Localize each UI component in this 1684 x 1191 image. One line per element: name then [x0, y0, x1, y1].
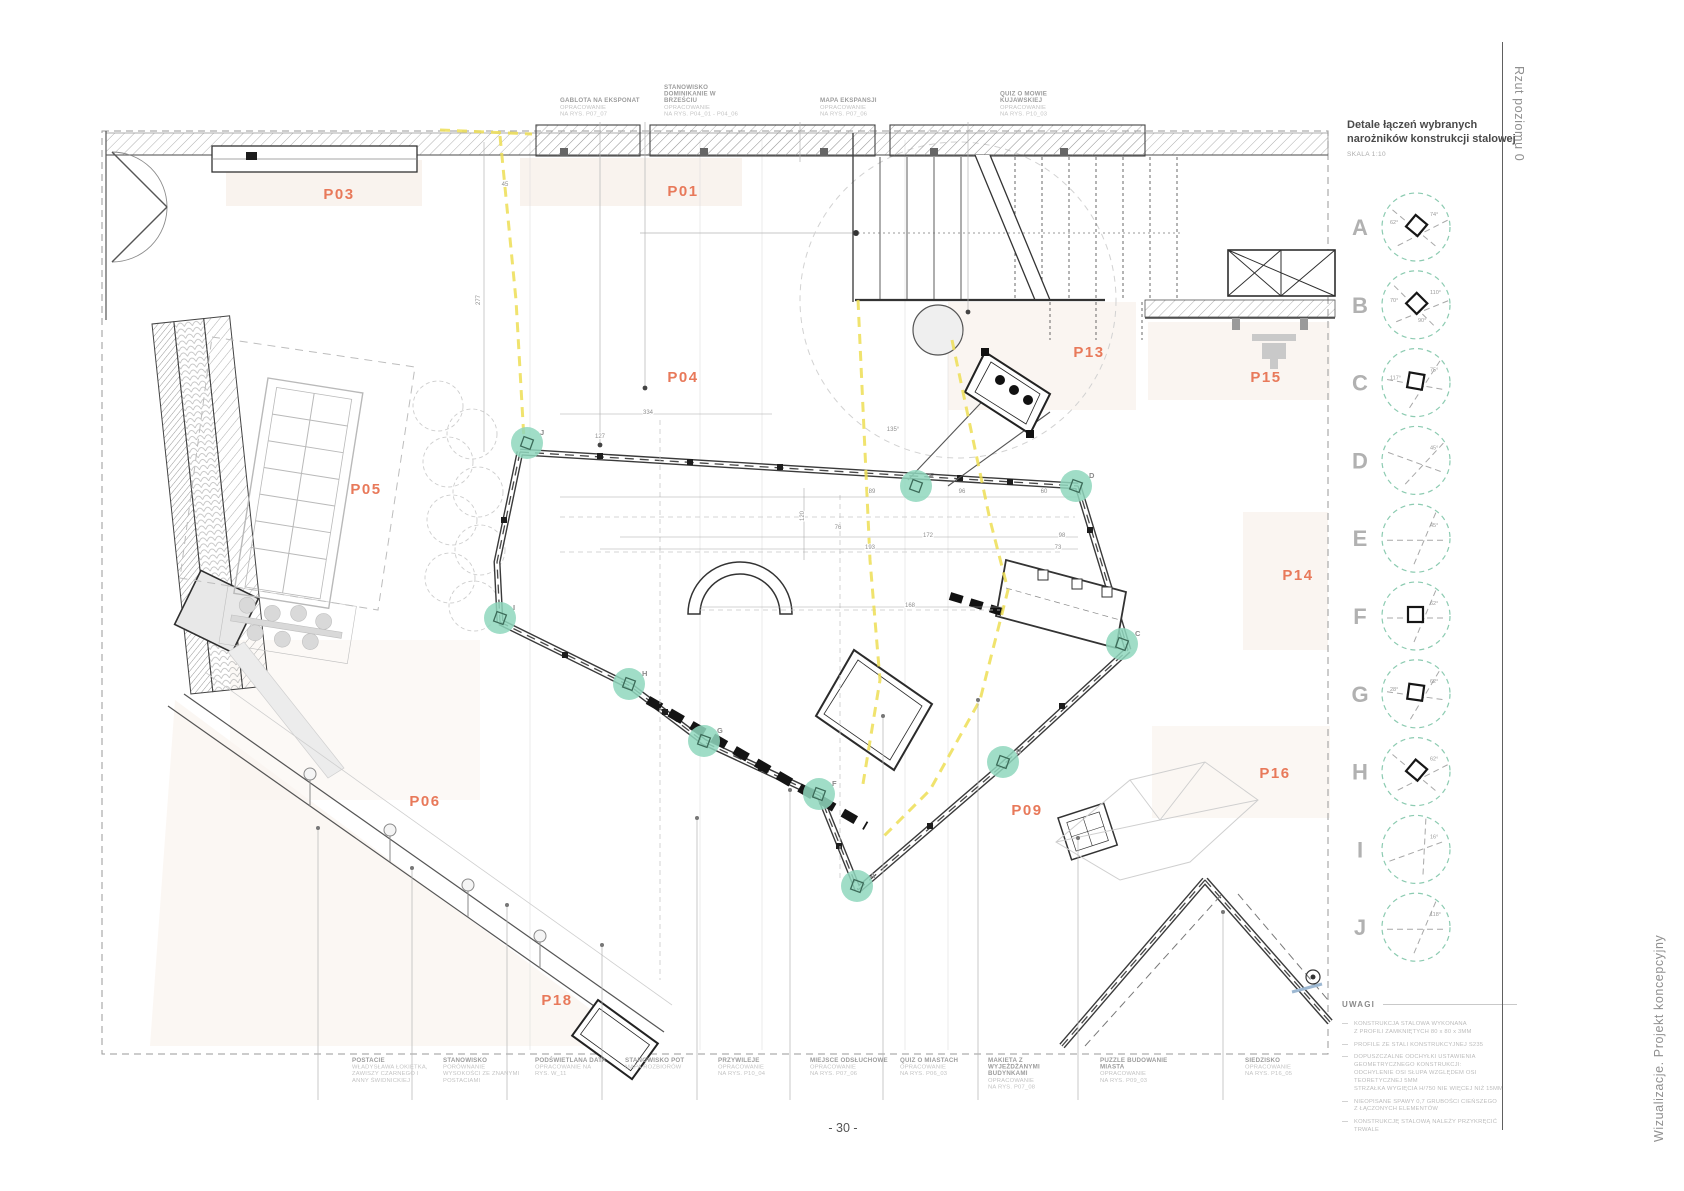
- note-lines: NIEOPISANE SPAWY 0,7 GRUBOŚCI CIEŃSZEGOZ…: [1354, 1099, 1497, 1115]
- annotation-line: OPRACOWANIE: [664, 105, 710, 111]
- annotation-line: NA RYS. P07_07: [560, 111, 607, 117]
- central-structure-walls: [497, 452, 1128, 890]
- leader-dot: [600, 943, 604, 947]
- detail-angle-label: 62°: [1390, 220, 1398, 226]
- annotation-bottom-6: MIEJSCE ODSŁUCHOWEOPRACOWANIENA RYS. P07…: [810, 1057, 888, 1077]
- detail-callouts: A74°62°B110°70°90°C75°117°D45°E45°F62°G6…: [1351, 188, 1454, 961]
- notes-list: —KONSTRUKCJA STALOWA WYKONANAZ PROFILI Z…: [1342, 1021, 1517, 1135]
- detail-wall-line: [1405, 435, 1443, 491]
- annotation-line: OPRACOWANIE: [900, 1065, 946, 1071]
- marker-circle: [1060, 470, 1092, 502]
- zone-label-P16: P16: [1259, 765, 1290, 782]
- detail-E: E45°: [1353, 504, 1450, 572]
- detail-sketch: [1380, 426, 1452, 495]
- right-wing: [950, 560, 1126, 648]
- detail-F: F62°: [1353, 582, 1450, 650]
- notes-rule: [1383, 1004, 1517, 1005]
- annotation-bottom-10: SIEDZISKOOPRACOWANIENA RYS. P16_05: [1245, 1057, 1292, 1077]
- detail-circle: [1382, 426, 1450, 494]
- annotation-line: GABLOTA NA EKSPONAT: [560, 97, 640, 104]
- annotation-line: BUDYNKAMI: [988, 1070, 1028, 1077]
- detail-sketch: [1383, 352, 1449, 413]
- dimension-label: 120: [800, 510, 806, 521]
- annotation-line: RYS. W_11: [535, 1071, 567, 1077]
- annotation-line: BRZEŚCIU: [664, 97, 698, 104]
- zone-label-P15: P15: [1250, 369, 1281, 386]
- note-line: DOPUSZCZALNE ODCHYŁKI USTAWIENIA: [1354, 1054, 1503, 1062]
- detail-wall-line: [1414, 901, 1436, 953]
- annotation-line: MIEJSCE ODSŁUCHOWE: [810, 1057, 888, 1064]
- note-lines: DOPUSZCZALNE ODCHYŁKI USTAWIENIAGEOMETRY…: [1354, 1054, 1503, 1093]
- note-item-3: —DOPUSZCZALNE ODCHYŁKI USTAWIENIAGEOMETR…: [1342, 1054, 1517, 1093]
- detail-wall-line: [1405, 818, 1443, 874]
- note-bullet: —: [1342, 1099, 1348, 1115]
- note-line: PROFILE ZE STALI KONSTRUKCYJNEJ S235: [1354, 1042, 1483, 1050]
- marker-letter: G: [717, 726, 723, 735]
- annotation-line: PODŚWIETLANA DATA: [535, 1057, 607, 1064]
- zone-tints: [150, 158, 1330, 1046]
- detail-angle-label: 74°: [1430, 212, 1438, 218]
- detail-letter: C: [1352, 371, 1368, 396]
- sheet-side-title: Rzut poziomu 0: [1512, 66, 1526, 161]
- annotations-bottom: POSTACIEWŁADYSŁAWA ŁOKIETKA,ZAWISZY CZAR…: [352, 1057, 1292, 1090]
- annotation-line: NA RYS. P10_03: [1000, 111, 1047, 117]
- steel-profile-square: [1407, 684, 1424, 701]
- marker-letter: J: [540, 428, 544, 437]
- marker-C: C: [1106, 628, 1141, 660]
- detail-B: B110°70°90°: [1352, 266, 1455, 344]
- annotation-line: POSTACIAMI: [443, 1078, 481, 1084]
- leader-dot: [1221, 910, 1225, 914]
- detail-angle-label: 117°: [1390, 376, 1401, 382]
- steel-profile-square: [1408, 607, 1423, 622]
- leader-dot: [976, 698, 980, 702]
- dimension-label: 45: [502, 182, 509, 188]
- annotation-line: NA RYS. P09_03: [1100, 1078, 1147, 1084]
- annotation-line: OPRACOWANIE NA: [535, 1065, 591, 1071]
- marker-letter: B: [1016, 747, 1022, 756]
- marker-A: A: [841, 870, 876, 902]
- marker-circle: [803, 778, 835, 810]
- annotation-top-3: MAPA EKSPANSJIOPRACOWANIENA RYS. P07_06: [820, 97, 877, 117]
- note-line: STRZAŁKA WYGIĘCIA H/750 NIE WIĘCEJ NIŻ 1…: [1354, 1086, 1503, 1094]
- annotation-line: PRZYWILEJE: [718, 1057, 760, 1064]
- leader-dot: [695, 816, 699, 820]
- note-lines: KONSTRUKCJĘ STALOWĄ NALEŻY PRZYKRĘCIĆ TR…: [1354, 1119, 1517, 1135]
- annotation-line: OPRACOWANIE: [1000, 105, 1046, 111]
- annotation-line: OPRACOWANIE: [810, 1065, 856, 1071]
- detail-letter: B: [1352, 293, 1368, 318]
- marker-letter: A: [870, 871, 876, 880]
- section-lines: [530, 140, 948, 1050]
- leader-dot: [598, 443, 603, 448]
- detail-circle: [1382, 504, 1450, 572]
- detail-angle-label: 118°: [1430, 912, 1441, 918]
- detail-letter: A: [1352, 215, 1368, 240]
- detail-I: I16°: [1357, 815, 1452, 884]
- annotation-line: NA RYS. P16_05: [1245, 1071, 1292, 1077]
- note-item-5: —KONSTRUKCJĘ STALOWĄ NALEŻY PRZYKRĘCIĆ T…: [1342, 1119, 1517, 1135]
- annotation-top-1: GABLOTA NA EKSPONATOPRACOWANIENA RYS. P0…: [560, 97, 640, 117]
- detail-A: A74°62°: [1352, 188, 1455, 265]
- marker-letter: C: [1135, 629, 1141, 638]
- detail-letter: D: [1352, 448, 1368, 473]
- annotation-bottom-7: QUIZ O MIASTACHOPRACOWANIENA RYS. P06_03: [900, 1057, 959, 1077]
- steel-profile-square: [1406, 760, 1427, 781]
- interior-guides: [560, 420, 1075, 980]
- marker-letter: D: [1089, 471, 1095, 480]
- detail-sketch: [1387, 590, 1445, 642]
- detail-G: G62°28°: [1351, 660, 1450, 728]
- detail-title-line1: Detale łączeń wybranych: [1347, 119, 1516, 133]
- detail-scale: SKALA 1:10: [1347, 151, 1516, 158]
- page-number: - 30 -: [793, 1121, 893, 1135]
- detail-panel-title: Detale łączeń wybranych narożników konst…: [1347, 119, 1516, 158]
- detail-angle-label: 45°: [1430, 523, 1438, 529]
- dimension-label: 60: [1041, 489, 1048, 495]
- detail-wall-line: [1389, 841, 1444, 861]
- detail-wall-line: [1414, 512, 1436, 564]
- annotations-top: GABLOTA NA EKSPONATOPRACOWANIENA RYS. P0…: [560, 84, 1047, 117]
- marker-circle: [987, 746, 1019, 778]
- dimension-label: 89: [869, 489, 876, 495]
- annotation-line: OPRACOWANIE: [820, 105, 866, 111]
- marker-D: D: [1060, 470, 1095, 502]
- detail-sketch: [1380, 815, 1452, 884]
- detail-title-line2: narożników konstrukcji stalowej: [1347, 133, 1516, 147]
- annotation-line: PORÓWNANIE: [443, 1064, 485, 1071]
- marker-circle: [1106, 628, 1138, 660]
- note-bullet: —: [1342, 1021, 1348, 1037]
- annotation-bottom-5: PRZYWILEJEOPRACOWANIENA RYS. P10_04: [718, 1057, 766, 1077]
- note-line: TEORETYCZNEJ 5MM: [1354, 1078, 1503, 1086]
- annotation-line: POSTACIE: [352, 1057, 385, 1064]
- dimension-label: 334: [643, 410, 654, 416]
- annotation-line: NA RYS. P04_01 - P04_06: [664, 111, 738, 117]
- detail-angle-label: 45°: [1430, 445, 1438, 451]
- note-line: ODCHYLENIE OSI SŁUPA WZGLĘDEM OSI: [1354, 1070, 1503, 1078]
- annotation-line: STANOWISKO: [443, 1057, 487, 1064]
- leader-dot: [788, 788, 792, 792]
- annotation-line: ZAWISZY CZARNEGO I: [352, 1071, 419, 1077]
- annotation-line: OPRACOWANIE: [718, 1065, 764, 1071]
- detail-sketch: [1387, 512, 1445, 564]
- annotation-line: STANOWISKO POT: [625, 1057, 684, 1064]
- dimension-label: 172: [923, 533, 934, 539]
- annotation-line: NA RYS. P06_03: [900, 1071, 947, 1077]
- marker-circle: [484, 602, 516, 634]
- drawing-sheet: 334127899660761721939873168135°45120277 …: [0, 0, 1684, 1191]
- note-item-2: —PROFILE ZE STALI KONSTRUKCYJNEJ S235: [1342, 1042, 1517, 1050]
- detail-angle-label: 16°: [1430, 834, 1438, 840]
- annotation-line: WŁADYSŁAWA ŁOKIETKA,: [352, 1065, 428, 1071]
- dimension-label: 98: [1059, 533, 1066, 539]
- zone-label-P05: P05: [350, 481, 381, 498]
- detail-angle-label: 62°: [1430, 679, 1438, 685]
- dimension-label: 277: [476, 294, 482, 305]
- zone-label-P18: P18: [541, 992, 572, 1009]
- note-item-1: —KONSTRUKCJA STALOWA WYKONANAZ PROFILI Z…: [1342, 1021, 1517, 1037]
- annotation-line: ANNY ŚWIDNICKIEJ: [352, 1076, 410, 1084]
- detail-sketch: [1387, 901, 1445, 953]
- leader-dot: [316, 826, 320, 830]
- detail-circle: [1382, 893, 1450, 961]
- annotation-line: NA RYS. P07_06: [820, 111, 867, 117]
- steel-profile-square: [1407, 372, 1424, 389]
- annotation-line: OPRACOWANIE: [560, 105, 606, 111]
- detail-letter: J: [1354, 915, 1366, 940]
- interior-furniture: [648, 562, 932, 826]
- annotation-bottom-3: PODŚWIETLANA DATAOPRACOWANIE NARYS. W_11: [535, 1057, 607, 1077]
- kiosk-p09: [1058, 803, 1117, 860]
- dimension-label: 127: [595, 434, 606, 440]
- detail-angle-label: 75°: [1430, 368, 1438, 374]
- zone-label-P06: P06: [409, 793, 440, 810]
- annotation-bottom-1: POSTACIEWŁADYSŁAWA ŁOKIETKA,ZAWISZY CZAR…: [352, 1057, 428, 1084]
- annotation-bottom-8: MAKIETA ZWYJEŻDŻANYMIBUDYNKAMIOPRACOWANI…: [988, 1057, 1040, 1090]
- note-bullet: —: [1342, 1119, 1348, 1135]
- display-cases-top: [536, 125, 1145, 156]
- leader-dot: [643, 386, 648, 391]
- annotation-line: QUIZ O MIASTACH: [900, 1057, 959, 1064]
- detail-D: D45°: [1352, 426, 1452, 495]
- detail-wall-line: [1398, 750, 1448, 804]
- notes-block: UWAGI —KONSTRUKCJA STALOWA WYKONANAZ PRO…: [1342, 1000, 1517, 1140]
- dimension-label: 193: [865, 545, 876, 551]
- sheet-side-subtitle: Wizualizacje. Projekt koncepcyjny: [1652, 935, 1666, 1142]
- steel-profile-square: [1406, 215, 1427, 236]
- notes-heading: UWAGI: [1342, 1000, 1375, 1009]
- annotation-line: NA RYS. P07_06: [810, 1071, 857, 1077]
- marker-circle: [900, 470, 932, 502]
- dimension-label: 76: [835, 525, 842, 531]
- detail-sketch: [1377, 266, 1455, 344]
- leader-dot: [410, 866, 414, 870]
- detail-H: H62°: [1352, 733, 1455, 810]
- annotation-line: MIASTA: [1100, 1064, 1125, 1071]
- marker-circle: [841, 870, 873, 902]
- marker-letter: F: [832, 779, 837, 788]
- note-lines: KONSTRUKCJA STALOWA WYKONANAZ PROFILI ZA…: [1354, 1021, 1471, 1037]
- leader-dot: [881, 714, 885, 718]
- dimension-label: 135°: [887, 427, 900, 433]
- zone-label-P01: P01: [667, 183, 698, 200]
- annotation-top-4: QUIZ O MOWIEKUJAWSKIEJOPRACOWANIENA RYS.…: [1000, 91, 1047, 118]
- detail-angle-label: 62°: [1430, 757, 1438, 763]
- detail-sketch: [1384, 664, 1449, 724]
- detail-angle-label: 62°: [1430, 601, 1438, 607]
- detail-letter: E: [1353, 526, 1368, 551]
- notes-heading-row: UWAGI: [1342, 1000, 1517, 1009]
- detail-sketch: [1377, 188, 1455, 265]
- marker-letter: E: [929, 471, 934, 480]
- note-bullet: —: [1342, 1042, 1348, 1050]
- dimension-label: 168: [905, 603, 916, 609]
- annotation-bottom-9: PUZZLE BUDOWANIEMIASTAOPRACOWANIENA RYS.…: [1100, 1057, 1167, 1084]
- note-line: KONSTRUKCJĘ STALOWĄ NALEŻY PRZYKRĘCIĆ TR…: [1354, 1119, 1517, 1135]
- marker-circle: [511, 427, 543, 459]
- marker-circle: [688, 725, 720, 757]
- note-line: Z PROFILI ZAMKNIĘTYCH 80 x 80 x 3MM: [1354, 1029, 1471, 1037]
- annotation-line: WYSOKOŚCI ZE ZNANYMI: [443, 1069, 520, 1077]
- note-line: KONSTRUKCJA STALOWA WYKONANA: [1354, 1021, 1471, 1029]
- zone-label-P13: P13: [1073, 344, 1104, 361]
- dimension-label: 73: [1055, 545, 1062, 551]
- annotation-line: OPRACOWANIE: [988, 1078, 1034, 1084]
- note-line: Z ŁĄCZONYCH ELEMENTÓW: [1354, 1106, 1497, 1114]
- detail-sketch: [1377, 733, 1455, 810]
- leader-dot: [505, 903, 509, 907]
- detail-J: J118°: [1354, 893, 1450, 961]
- annotation-line: KUJAWSKIEJ: [1000, 97, 1043, 104]
- detail-angle-label: 90°: [1418, 318, 1426, 324]
- detail-letter: I: [1357, 837, 1363, 862]
- detail-letter: G: [1351, 682, 1368, 707]
- detail-C: C75°117°: [1352, 349, 1450, 417]
- note-lines: PROFILE ZE STALI KONSTRUKCYJNEJ S235: [1354, 1042, 1483, 1050]
- marker-letter: I: [513, 603, 515, 612]
- detail-angle-label: 28°: [1390, 687, 1398, 693]
- zone-label-P03: P03: [323, 186, 354, 203]
- detail-letter: H: [1352, 760, 1368, 785]
- marker-I: I: [484, 602, 516, 634]
- note-line: GEOMETRYCZNEGO KONSTRUKCJI:: [1354, 1062, 1503, 1070]
- marker-circle: [613, 668, 645, 700]
- dimension-label: 96: [959, 489, 966, 495]
- detail-letter: F: [1353, 604, 1366, 629]
- annotation-line: MAPA ROZBIORÓW: [625, 1064, 682, 1071]
- zone-label-P09: P09: [1011, 802, 1042, 819]
- annotation-line: NA RYS. P10_04: [718, 1071, 766, 1077]
- zone-label-P14: P14: [1282, 567, 1313, 584]
- marker-B: B: [987, 746, 1022, 778]
- leader-dot: [966, 310, 971, 315]
- vertical-separator: [1502, 42, 1503, 1130]
- annotation-line: SIEDZISKO: [1245, 1057, 1280, 1064]
- detail-circle: [1382, 815, 1450, 883]
- zone-label-P04: P04: [667, 369, 698, 386]
- display-case-p03: [212, 146, 417, 172]
- annotation-line: NA RYS. P07_08: [988, 1084, 1035, 1090]
- detail-angle-label: 70°: [1390, 298, 1398, 304]
- annotation-bottom-2: STANOWISKOPORÓWNANIEWYSOKOŚCI ZE ZNANYMI…: [443, 1057, 520, 1084]
- annotation-line: OPRACOWANIE: [1100, 1071, 1146, 1077]
- annotation-line: MAPA EKSPANSJI: [820, 97, 877, 104]
- annotation-top-2: STANOWISKODOMINIKANIE WBRZEŚCIUOPRACOWAN…: [664, 84, 738, 117]
- leader-dot: [1076, 836, 1080, 840]
- detail-wall-line: [1388, 452, 1443, 472]
- note-item-4: —NIEOPISANE SPAWY 0,7 GRUBOŚCI CIEŃSZEGO…: [1342, 1099, 1517, 1115]
- entrance-doors: [106, 131, 167, 320]
- note-bullet: —: [1342, 1054, 1348, 1093]
- detail-wall-line: [1398, 206, 1448, 260]
- marker-letter: H: [642, 669, 647, 678]
- annotation-bottom-4: STANOWISKO POTMAPA ROZBIORÓW: [625, 1057, 684, 1071]
- annotation-line: OPRACOWANIE: [1245, 1065, 1291, 1071]
- detail-angle-label: 110°: [1430, 290, 1441, 296]
- stool-circles: [413, 381, 505, 631]
